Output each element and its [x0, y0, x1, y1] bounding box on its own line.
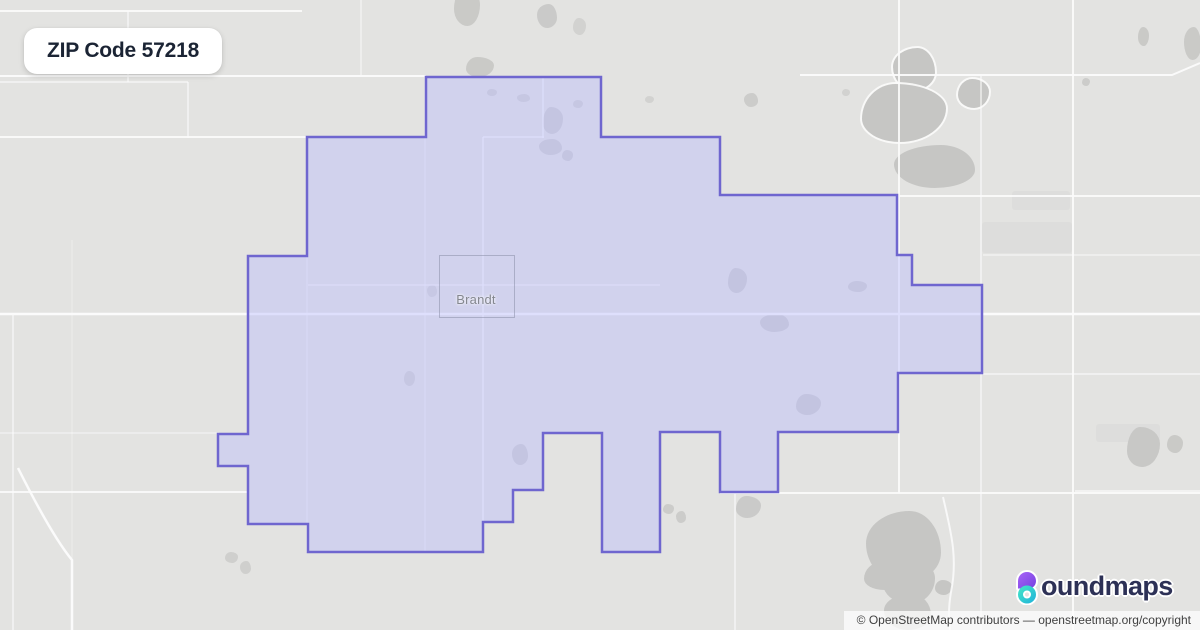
zip-code-badge-label: ZIP Code 57218 — [47, 39, 199, 62]
town-boundary-box — [439, 255, 515, 318]
road-line — [800, 63, 1200, 75]
zip-boundary-polygon — [218, 77, 982, 552]
logo-wordmark: oundmaps — [1041, 571, 1173, 602]
map-layers-svg — [0, 0, 1200, 630]
map-canvas[interactable]: Brandt — [0, 0, 1200, 630]
map-page: Brandt ZIP Code 57218 — [0, 0, 1200, 630]
town-label: Brandt — [456, 292, 496, 307]
attribution-text[interactable]: © OpenStreetMap contributors — openstree… — [857, 613, 1191, 627]
attribution-bar: © OpenStreetMap contributors — openstree… — [844, 611, 1200, 630]
boundmaps-logo: oundmaps — [1014, 569, 1173, 610]
zip-code-badge: ZIP Code 57218 — [24, 28, 222, 74]
logo-b-icon — [1014, 569, 1040, 610]
